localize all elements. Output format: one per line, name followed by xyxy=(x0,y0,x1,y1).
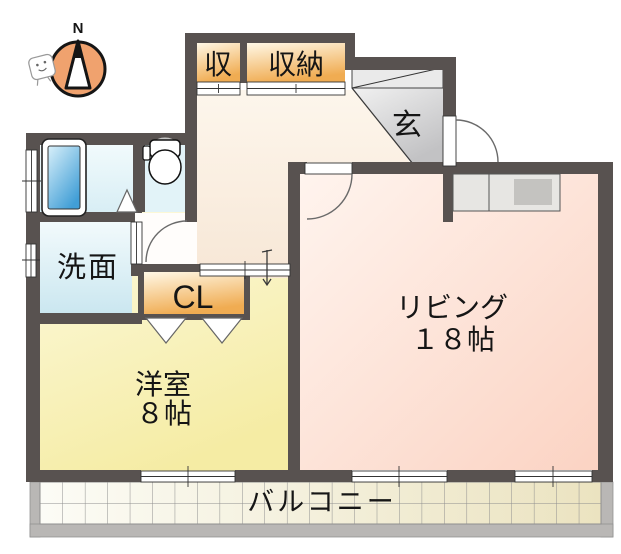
label-balcony: バルコニー xyxy=(247,487,396,517)
label-entrance: 玄 xyxy=(392,109,422,142)
label-western-room-size: ８帖 xyxy=(136,398,192,429)
wall-segment xyxy=(447,470,515,482)
wall-segment xyxy=(185,33,355,43)
compass-north-label: N xyxy=(73,20,84,37)
wall-segment xyxy=(26,313,142,324)
label-living-room: リビング xyxy=(396,292,508,323)
wall-segment xyxy=(235,470,300,482)
label-closet: CL xyxy=(173,279,214,315)
storage-small-sliding-door xyxy=(197,82,240,95)
wall-segment xyxy=(598,162,613,482)
washroom-sliding-door xyxy=(131,222,142,264)
wall-segment xyxy=(185,33,197,222)
kitchen-counter xyxy=(453,174,560,211)
floor-plan: N 収 収納 玄 洗面 CL 洋室 ８帖 リビング １８帖 バルコニー xyxy=(0,0,621,554)
balcony-border-bottom xyxy=(30,524,613,537)
label-washroom: 洗面 xyxy=(57,251,119,284)
wall-segment xyxy=(288,162,300,482)
entrance-door-swing-arc xyxy=(456,120,498,162)
floor-plan-canvas: N 収 収納 玄 洗面 CL 洋室 ８帖 リビング １８帖 バルコニー xyxy=(0,0,621,554)
entrance-door xyxy=(443,116,498,166)
label-storage-small: 収 xyxy=(204,49,232,80)
room-floors xyxy=(27,43,613,537)
label-storage-large: 収納 xyxy=(268,49,324,80)
wall-segment xyxy=(300,470,352,482)
wall-segment xyxy=(443,57,456,118)
wall-segment xyxy=(288,162,307,174)
wall-segment xyxy=(592,470,613,482)
shoe-cabinet xyxy=(352,67,443,88)
label-living-room-size: １８帖 xyxy=(411,324,495,355)
wall-segment xyxy=(240,43,247,83)
wall-segment xyxy=(352,162,613,174)
storage-large-sliding-door xyxy=(247,82,345,95)
wall-segment xyxy=(345,57,456,70)
wall-segment xyxy=(26,470,141,482)
bathtub xyxy=(42,139,86,216)
label-western-room: 洋室 xyxy=(135,369,191,400)
wall-segment xyxy=(443,174,453,222)
western-room-sliding-door xyxy=(200,261,290,279)
kitchen-stove xyxy=(514,179,552,205)
compass: N xyxy=(51,20,105,96)
